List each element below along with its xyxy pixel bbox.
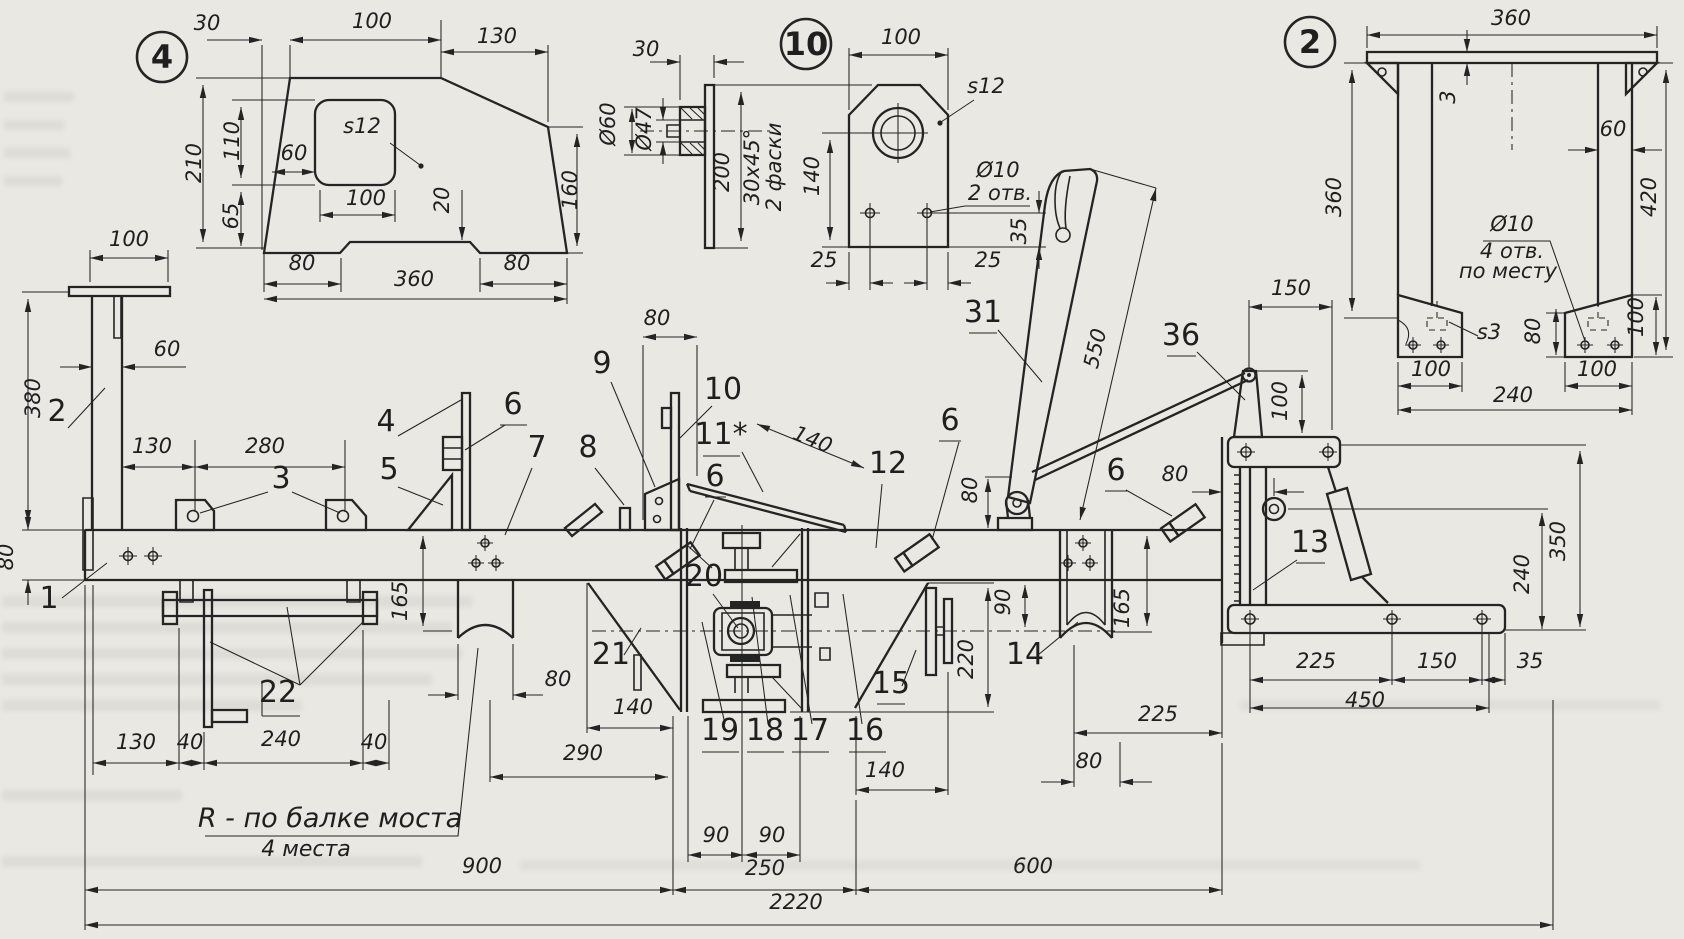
m-callout-18: 18 [746, 713, 784, 748]
m-dim-80-beam: 80 [0, 544, 18, 571]
balloon-detail-4: 4 [137, 32, 187, 82]
d2-dim-360-top: 360 [1491, 6, 1531, 30]
m-dim-140-blade: 140 [790, 421, 836, 458]
d10-dim-25r: 25 [975, 248, 1002, 272]
m-dim-250: 250 [745, 856, 785, 880]
m-dim-550: 550 [1079, 326, 1111, 370]
engineering-drawing-canvas: 4102 301001302101106560s1210020160803608… [0, 0, 1684, 939]
m-callout-36: 36 [1162, 318, 1200, 353]
sv-dim-d60: Ø60 [596, 102, 620, 146]
m-callout-31: 31 [964, 295, 1002, 330]
balloon-detail-2: 2 [1285, 17, 1335, 67]
d4-dim-110: 110 [220, 121, 244, 161]
m-dim-2220: 2220 [769, 890, 822, 914]
d10-dim-25l: 25 [811, 248, 838, 272]
m-dim-350: 350 [1546, 521, 1570, 561]
m-callout-6d: 6 [1106, 453, 1125, 488]
d2-dim-420: 420 [1637, 177, 1661, 217]
m-dim-280: 280 [245, 434, 285, 458]
d4-dim-160: 160 [558, 170, 582, 210]
m-dim-40b: 40 [361, 730, 388, 754]
m-dim-150-base: 150 [1417, 649, 1457, 673]
balloon-detail-10: 10 [781, 19, 831, 69]
m-dim-240-right: 240 [1510, 554, 1534, 594]
m-note-radius-qty: 4 места [261, 837, 351, 862]
m-dim-290: 290 [563, 741, 603, 765]
d4-dim-210: 210 [182, 143, 206, 183]
d2-note-d10: Ø10 [1489, 212, 1533, 236]
detail-balloons: 4102 [137, 17, 1335, 82]
main-beam [85, 530, 1222, 580]
m-dim-80-saddle: 80 [545, 667, 572, 691]
d4-thickness: s12 [343, 114, 381, 138]
m-callout-12: 12 [869, 446, 907, 481]
m-callout-7: 7 [527, 430, 546, 465]
m-callout-20: 20 [685, 559, 723, 594]
m-callout-5: 5 [379, 452, 398, 487]
m-callout-6a: 6 [503, 387, 522, 422]
m-callout-19: 19 [701, 713, 739, 748]
d2-dim-80: 80 [1521, 318, 1545, 345]
m-dim-80-bar10: 80 [644, 306, 671, 330]
sv-dim-200: 200 [710, 152, 734, 192]
m-dim-150-lever: 150 [1271, 276, 1311, 300]
m-note-radius: R - по балке моста [198, 803, 462, 834]
m-callout-10: 10 [704, 372, 742, 407]
m-callout-11: 11* [694, 417, 747, 452]
detail-2-left-foot [1398, 295, 1462, 357]
m-dim-165-right: 165 [1110, 588, 1134, 628]
m-callout-13: 13 [1291, 525, 1329, 560]
d4-dim-80-right: 80 [504, 251, 531, 275]
d4-dim-80-left: 80 [289, 251, 316, 275]
d2-thickness: s3 [1477, 320, 1501, 344]
d2-dim-100-right: 100 [1624, 297, 1648, 337]
balloon-detail-10-number: 10 [784, 25, 829, 63]
m-callout-15: 15 [872, 666, 910, 701]
m-callout-9: 9 [592, 346, 611, 381]
d10-dim-100: 100 [881, 25, 921, 49]
d4-dim-65: 65 [219, 203, 243, 230]
m-callout-3: 3 [271, 461, 290, 496]
m-callout-14: 14 [1006, 637, 1044, 672]
m-callout-2: 2 [47, 394, 66, 429]
m-dim-380: 380 [21, 378, 45, 418]
m-dim-225-mid: 225 [1138, 702, 1178, 726]
m-callout-4: 4 [376, 404, 395, 439]
m-dim-140-right: 140 [865, 758, 905, 782]
sv-note-chamfer2: 2 фаски [762, 123, 786, 212]
m-dim-90a: 90 [703, 823, 730, 847]
d4-dim-60: 60 [281, 141, 308, 165]
m-dim-80-pivot: 80 [958, 477, 982, 504]
m-dim-90b: 90 [759, 823, 786, 847]
d10-thickness: s12 [967, 74, 1005, 98]
m-callout-1: 1 [39, 581, 58, 616]
m-dim-90-axis: 90 [991, 589, 1015, 616]
d2-dim-100-footr: 100 [1577, 357, 1617, 381]
m-dim-130b: 130 [116, 730, 156, 754]
detail-4-square-hole [315, 100, 395, 185]
d10-dim-140: 140 [800, 156, 824, 196]
d10-dim-35: 35 [1007, 218, 1031, 245]
m-dim-600: 600 [1013, 854, 1053, 878]
m-dim-140-left: 140 [613, 695, 653, 719]
m-callout-16: 16 [846, 713, 884, 748]
scan-bleed-texture [2, 92, 1660, 870]
saddle-clamp-left [458, 580, 513, 638]
d2-dim-100-footl: 100 [1411, 357, 1451, 381]
m-callout-6b: 6 [705, 459, 724, 494]
m-dim-450: 450 [1345, 688, 1385, 712]
d10-note-d10: Ø10 [975, 158, 1019, 182]
part-4-upright [462, 393, 470, 530]
m-callout-21: 21 [592, 637, 630, 672]
m-callout-6c: 6 [940, 403, 959, 438]
right-fixture [1221, 437, 1548, 645]
m-dim-40a: 40 [177, 730, 204, 754]
m-dim-80-rack: 80 [1162, 462, 1189, 486]
m-dim-100-bracket: 100 [1268, 381, 1292, 421]
d2-dim-360-left: 360 [1322, 177, 1346, 217]
sv-dim-d47: Ø47 [632, 107, 656, 152]
d2-dim-60: 60 [1600, 117, 1627, 141]
d2-dim-240: 240 [1493, 383, 1533, 407]
m-callout-22: 22 [259, 675, 297, 710]
d2-note-pomestu: по месту [1459, 259, 1558, 283]
m-dim-240b: 240 [261, 727, 301, 751]
m-callout-8: 8 [578, 430, 597, 465]
m-callout-17: 17 [791, 713, 829, 748]
m-dim-220: 220 [954, 639, 978, 679]
d4-dim-20: 20 [430, 187, 454, 214]
saddle-clamp-right [1060, 530, 1112, 638]
sv-note-chamfer1: 30х45° [740, 129, 764, 205]
d4-dim-130: 130 [477, 24, 517, 48]
balloon-detail-2-number: 2 [1299, 23, 1321, 61]
drawing-page: 4102 301001302101106560s1210020160803608… [0, 0, 1684, 939]
m-dim-130: 130 [132, 434, 172, 458]
sv-dim-30: 30 [633, 37, 660, 61]
m-dim-80-mid: 80 [1076, 749, 1103, 773]
m-dim-100-plate: 100 [109, 227, 149, 251]
balloon-detail-4-number: 4 [151, 38, 173, 76]
m-dim-165-left: 165 [388, 581, 412, 621]
d2-dim-3: 3 [1436, 90, 1460, 103]
m-dim-35-base: 35 [1517, 649, 1544, 673]
m-dim-60: 60 [154, 337, 181, 361]
d4-dim-100-top: 100 [352, 9, 392, 33]
d4-dim-360: 360 [394, 267, 434, 291]
m-dim-225-base: 225 [1296, 649, 1336, 673]
m-dim-900: 900 [462, 854, 502, 878]
d4-dim-30: 30 [194, 11, 221, 35]
d10-note-2otv: 2 отв. [968, 181, 1032, 205]
d4-dim-100-hole: 100 [346, 186, 386, 210]
